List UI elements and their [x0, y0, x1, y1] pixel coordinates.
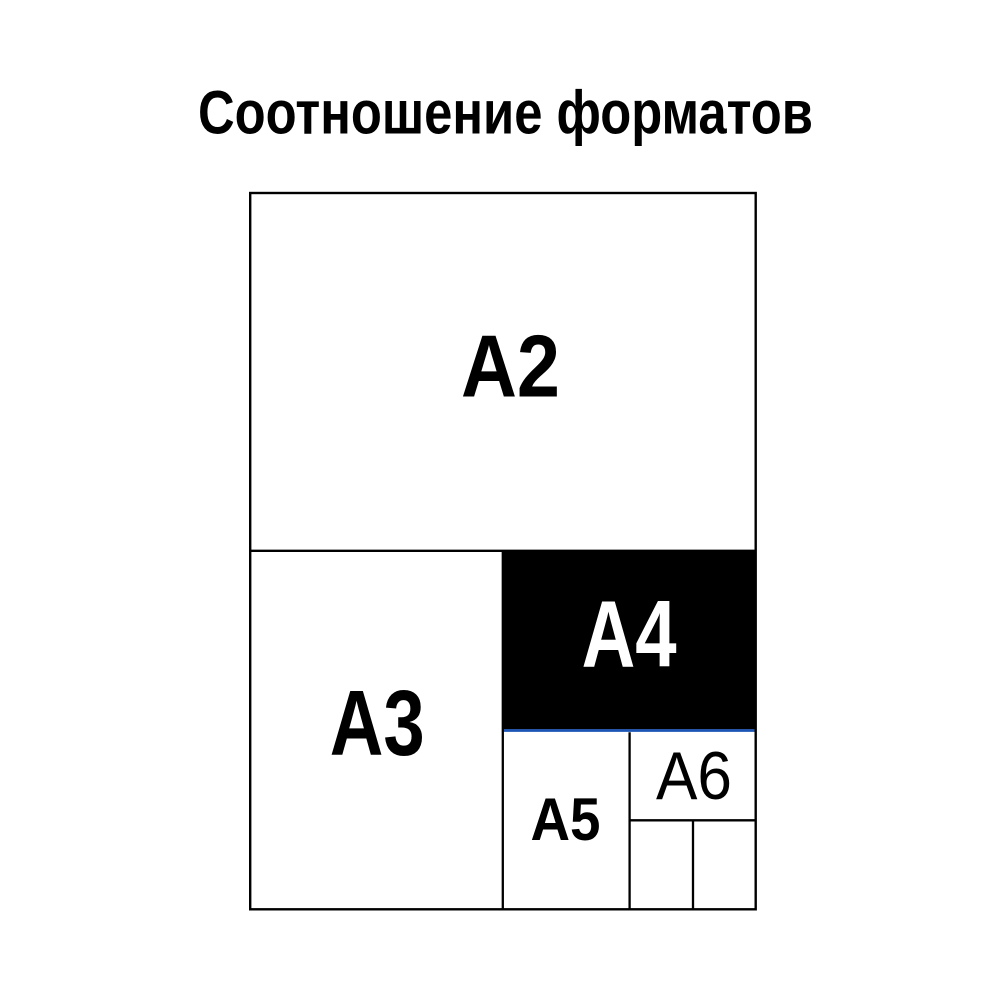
svg-text:A2: A2	[461, 317, 560, 416]
svg-text:A5: A5	[531, 785, 601, 853]
svg-text:A4: A4	[582, 582, 677, 688]
svg-text:A6: A6	[656, 738, 732, 814]
svg-text:Соотношение форматов: Соотношение форматов	[198, 79, 813, 148]
svg-text:A3: A3	[330, 671, 425, 775]
